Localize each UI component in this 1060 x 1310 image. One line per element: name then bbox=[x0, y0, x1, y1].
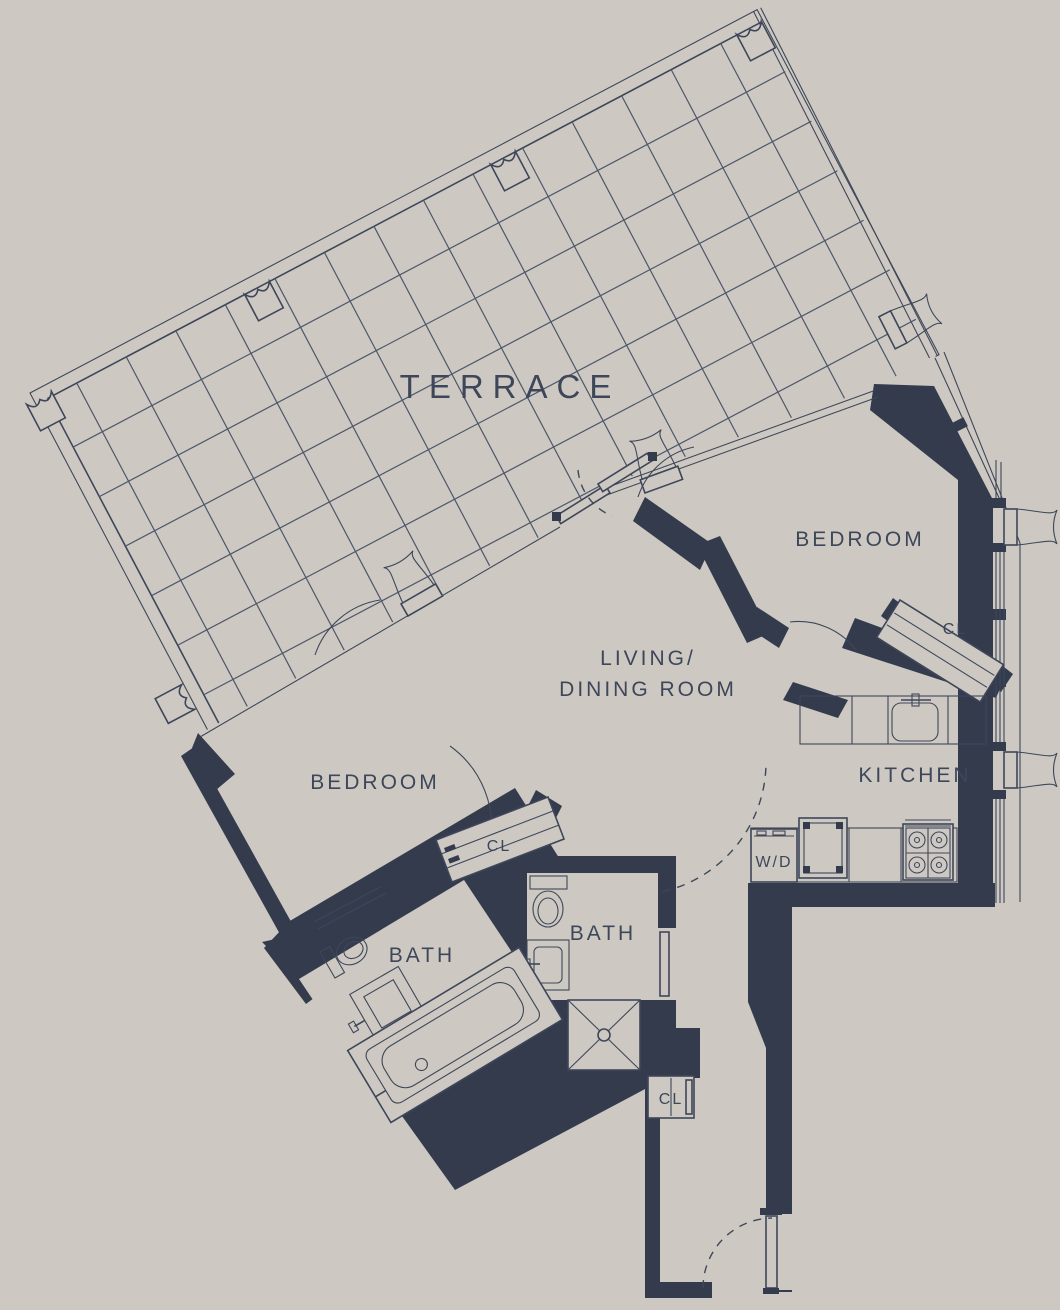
bath-right-label: BATH bbox=[570, 922, 636, 945]
floor-plan: TERRACE BEDROOM BEDROOM LIVING/ DINING R… bbox=[0, 0, 1060, 1310]
stove bbox=[903, 820, 953, 880]
bedroom-left-label: BEDROOM bbox=[310, 771, 440, 794]
floor-plan-page: TERRACE BEDROOM BEDROOM LIVING/ DINING R… bbox=[0, 0, 1060, 1310]
bath-left-label: BATH bbox=[389, 944, 455, 967]
refrigerator bbox=[799, 818, 847, 878]
bedroom-right-label: BEDROOM bbox=[795, 528, 925, 551]
casement-window-upper bbox=[1004, 509, 1057, 545]
casement-window-lower bbox=[1004, 752, 1057, 788]
cl-bedroom-left-label: CL bbox=[487, 838, 511, 855]
terrace-label: TERRACE bbox=[400, 368, 621, 405]
kitchen-label: KITCHEN bbox=[858, 764, 971, 787]
living-label-line1: LIVING/ bbox=[600, 647, 696, 670]
living-label-line2: DINING ROOM bbox=[559, 678, 737, 701]
cl-bedroom-right-label: CL bbox=[943, 621, 967, 638]
cl-hall-label: CL bbox=[659, 1091, 683, 1108]
wd-label: W/D bbox=[755, 854, 792, 871]
shower bbox=[568, 1000, 640, 1070]
